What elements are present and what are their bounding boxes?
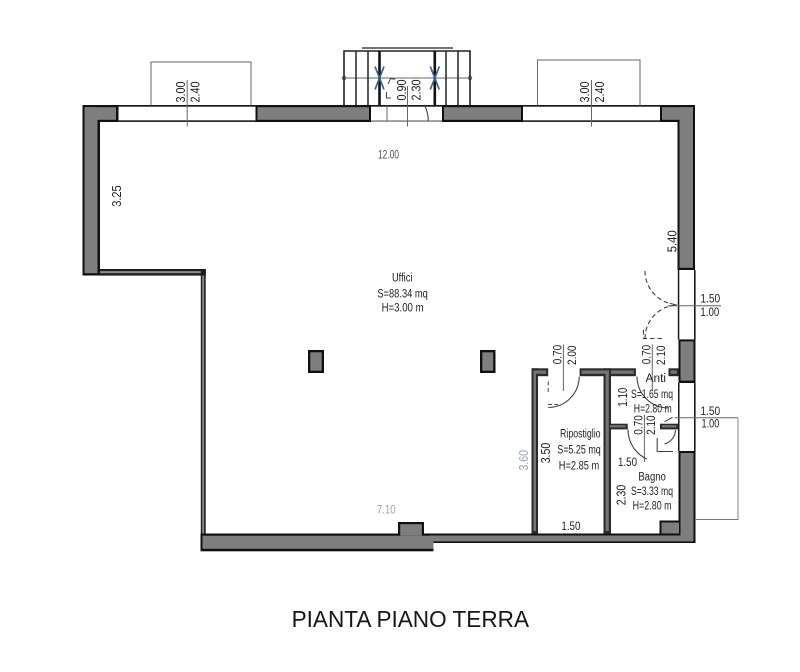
svg-text:S=88.34 mq: S=88.34 mq [377, 288, 428, 300]
svg-text:2.10: 2.10 [654, 345, 668, 365]
svg-text:2.30: 2.30 [613, 485, 628, 506]
svg-text:1.10: 1.10 [615, 388, 630, 407]
svg-text:0.90: 0.90 [394, 80, 409, 101]
svg-text:PIANTA PIANO TERRA: PIANTA PIANO TERRA [292, 606, 530, 632]
svg-text:5.40: 5.40 [665, 230, 680, 252]
svg-text:Bagno: Bagno [638, 472, 666, 484]
svg-text:S=1.65 mq: S=1.65 mq [631, 389, 673, 401]
svg-text:2.00: 2.00 [565, 345, 579, 365]
svg-text:H=2.80 m: H=2.80 m [634, 404, 672, 416]
svg-text:1.50: 1.50 [618, 455, 637, 469]
svg-text:Uffici: Uffici [392, 272, 413, 284]
svg-text:H=2.85 m: H=2.85 m [559, 460, 600, 472]
svg-text:1.50: 1.50 [561, 519, 580, 533]
svg-text:2.40: 2.40 [592, 82, 607, 103]
svg-text:3.00: 3.00 [577, 82, 592, 103]
svg-text:1.00: 1.00 [700, 305, 719, 319]
svg-text:12.00: 12.00 [378, 147, 399, 161]
svg-text:Anti: Anti [646, 373, 667, 385]
svg-text:0.70: 0.70 [551, 345, 565, 365]
svg-text:S=3.33 mq: S=3.33 mq [631, 486, 673, 498]
svg-text:3.00: 3.00 [173, 82, 188, 103]
svg-text:H=3.00 m: H=3.00 m [382, 303, 424, 315]
svg-text:3.60: 3.60 [516, 450, 531, 471]
svg-text:2.30: 2.30 [409, 80, 424, 101]
svg-text:S=5.25 mq: S=5.25 mq [557, 444, 601, 456]
svg-text:1.00: 1.00 [702, 417, 720, 431]
svg-text:7.10: 7.10 [377, 502, 396, 516]
svg-text:3.25: 3.25 [109, 185, 124, 207]
svg-text:1.50: 1.50 [700, 292, 720, 306]
svg-text:0.70: 0.70 [640, 345, 654, 365]
svg-text:Ripostiglio: Ripostiglio [560, 428, 601, 440]
svg-text:2.10: 2.10 [644, 415, 658, 435]
svg-text:2.40: 2.40 [187, 82, 202, 103]
svg-text:3.50: 3.50 [538, 443, 553, 464]
svg-text:H=2.80 m: H=2.80 m [633, 501, 672, 513]
